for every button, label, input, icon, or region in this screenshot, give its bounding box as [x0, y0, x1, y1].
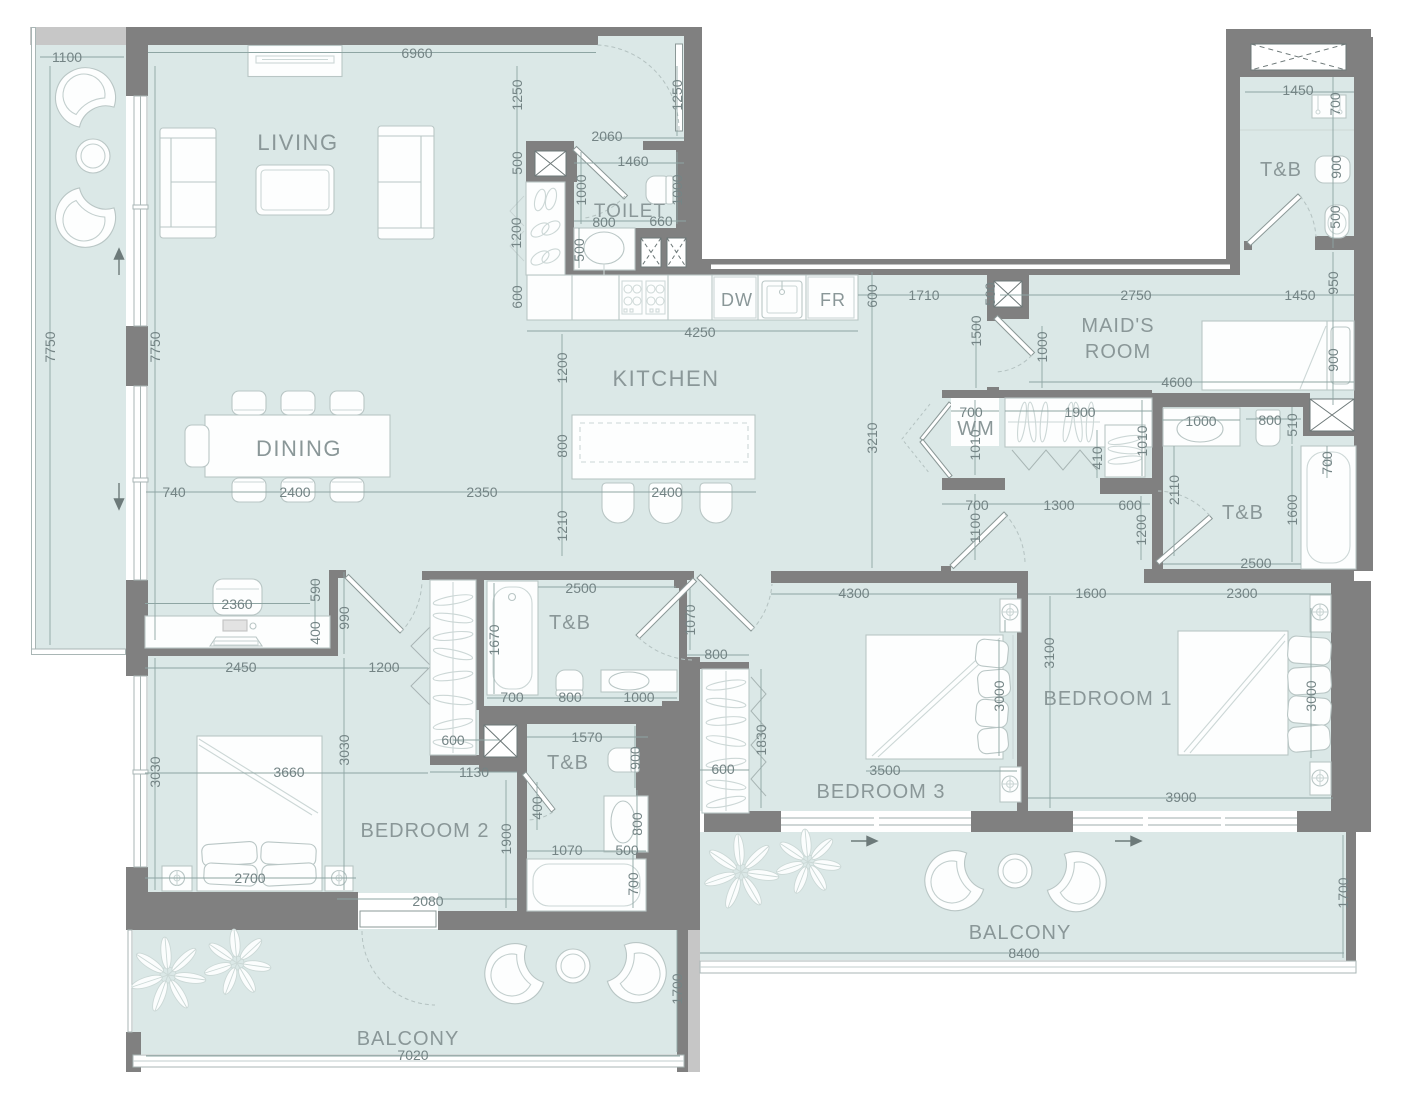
svg-text:1450: 1450	[1282, 82, 1313, 98]
svg-text:700: 700	[500, 689, 524, 705]
svg-text:2500: 2500	[565, 580, 596, 596]
svg-text:600: 600	[711, 761, 735, 777]
svg-text:1000: 1000	[669, 174, 685, 205]
svg-text:740: 740	[162, 484, 186, 500]
svg-text:1500: 1500	[968, 315, 984, 346]
svg-text:800: 800	[1258, 412, 1282, 428]
svg-text:700: 700	[625, 872, 641, 896]
svg-text:700: 700	[1319, 451, 1335, 475]
svg-text:T&B: T&B	[549, 612, 591, 634]
svg-text:2060: 2060	[591, 128, 622, 144]
svg-text:BALCONY: BALCONY	[969, 922, 1072, 944]
svg-text:900: 900	[1328, 155, 1344, 179]
svg-text:900: 900	[627, 746, 643, 770]
svg-text:800: 800	[704, 646, 728, 662]
svg-text:DW: DW	[721, 290, 753, 310]
svg-text:1200: 1200	[1133, 514, 1149, 545]
svg-text:2350: 2350	[466, 484, 497, 500]
svg-text:1700: 1700	[669, 973, 685, 1004]
svg-text:990: 990	[336, 606, 352, 630]
svg-text:2360: 2360	[221, 596, 252, 612]
svg-text:BEDROOM 2: BEDROOM 2	[360, 820, 489, 842]
svg-text:WM: WM	[957, 418, 995, 440]
svg-text:1700: 1700	[1335, 877, 1351, 908]
svg-text:1070: 1070	[551, 842, 582, 858]
svg-text:1000: 1000	[1034, 331, 1050, 362]
svg-text:1010: 1010	[1134, 425, 1150, 456]
svg-text:ROOM: ROOM	[1085, 341, 1151, 363]
svg-text:3660: 3660	[273, 764, 304, 780]
svg-text:4600: 4600	[1161, 374, 1192, 390]
svg-text:700: 700	[965, 497, 989, 513]
svg-text:950: 950	[1325, 271, 1341, 295]
svg-text:2110: 2110	[1166, 475, 1182, 505]
svg-text:3030: 3030	[147, 756, 163, 787]
svg-text:500: 500	[982, 282, 998, 306]
svg-text:2400: 2400	[651, 484, 682, 500]
svg-text:600: 600	[1118, 497, 1142, 513]
svg-text:BEDROOM 1: BEDROOM 1	[1043, 688, 1172, 710]
svg-text:T&B: T&B	[547, 752, 589, 774]
svg-text:T&B: T&B	[1222, 502, 1264, 524]
svg-text:1200: 1200	[508, 217, 524, 248]
svg-text:500: 500	[615, 842, 639, 858]
svg-text:3000: 3000	[991, 680, 1007, 711]
svg-text:500: 500	[571, 238, 587, 262]
svg-text:500: 500	[509, 151, 525, 175]
svg-text:4300: 4300	[838, 585, 869, 601]
svg-text:1900: 1900	[498, 823, 514, 854]
svg-text:FR: FR	[820, 290, 846, 310]
svg-text:MAID'S: MAID'S	[1081, 315, 1154, 337]
svg-text:3000: 3000	[1303, 680, 1319, 711]
svg-text:1070: 1070	[682, 604, 698, 635]
svg-text:2080: 2080	[412, 893, 443, 909]
svg-text:1600: 1600	[1284, 494, 1300, 525]
svg-text:800: 800	[558, 689, 582, 705]
svg-text:KITCHEN: KITCHEN	[612, 366, 719, 391]
svg-text:2700: 2700	[234, 870, 265, 886]
svg-text:1670: 1670	[486, 624, 502, 655]
svg-text:1600: 1600	[1075, 585, 1106, 601]
svg-text:1000: 1000	[623, 689, 654, 705]
svg-text:4250: 4250	[684, 324, 715, 340]
svg-text:1250: 1250	[509, 79, 525, 110]
svg-text:T&B: T&B	[1260, 159, 1302, 181]
svg-text:1130: 1130	[459, 764, 489, 780]
svg-text:3030: 3030	[336, 734, 352, 765]
svg-text:1250: 1250	[669, 79, 685, 110]
svg-text:DINING: DINING	[256, 436, 342, 461]
svg-text:3210: 3210	[864, 422, 880, 453]
svg-text:3500: 3500	[869, 762, 900, 778]
svg-text:BEDROOM 3: BEDROOM 3	[816, 781, 945, 803]
svg-text:1570: 1570	[571, 729, 602, 745]
svg-text:2500: 2500	[1240, 555, 1271, 571]
svg-text:600: 600	[441, 732, 465, 748]
svg-text:7750: 7750	[42, 331, 58, 362]
svg-text:BALCONY: BALCONY	[357, 1028, 460, 1050]
svg-text:900: 900	[1325, 348, 1341, 372]
svg-text:1710: 1710	[908, 287, 939, 303]
svg-text:800: 800	[554, 434, 570, 458]
svg-text:1100: 1100	[52, 49, 82, 65]
svg-text:3100: 3100	[1041, 637, 1057, 668]
svg-text:2450: 2450	[225, 659, 256, 675]
svg-text:400: 400	[529, 796, 545, 820]
svg-text:510: 510	[1284, 413, 1300, 437]
svg-text:1100: 1100	[967, 513, 983, 543]
svg-text:3900: 3900	[1165, 789, 1196, 805]
svg-text:1300: 1300	[1043, 497, 1074, 513]
svg-text:TOILET: TOILET	[594, 201, 666, 222]
svg-text:410: 410	[1089, 446, 1105, 470]
svg-text:1900: 1900	[1064, 404, 1095, 420]
svg-text:6960: 6960	[401, 45, 432, 61]
svg-text:7750: 7750	[147, 331, 163, 362]
svg-text:8400: 8400	[1008, 945, 1039, 961]
svg-text:400: 400	[307, 621, 323, 645]
svg-text:1000: 1000	[573, 174, 589, 205]
svg-text:2400: 2400	[279, 484, 310, 500]
svg-text:1450: 1450	[1284, 287, 1315, 303]
svg-text:1200: 1200	[554, 352, 570, 383]
svg-text:1200: 1200	[368, 659, 399, 675]
svg-text:LIVING: LIVING	[257, 130, 338, 155]
svg-text:1830: 1830	[753, 724, 769, 755]
svg-text:1460: 1460	[617, 153, 648, 169]
svg-text:2300: 2300	[1226, 585, 1257, 601]
svg-text:590: 590	[307, 578, 323, 602]
svg-text:600: 600	[864, 284, 880, 308]
svg-text:700: 700	[1327, 92, 1343, 116]
svg-text:1000: 1000	[1185, 413, 1216, 429]
svg-text:500: 500	[1327, 205, 1343, 229]
svg-text:1210: 1210	[554, 510, 570, 541]
svg-text:600: 600	[509, 285, 525, 309]
svg-text:800: 800	[629, 812, 645, 836]
svg-text:2750: 2750	[1120, 287, 1151, 303]
